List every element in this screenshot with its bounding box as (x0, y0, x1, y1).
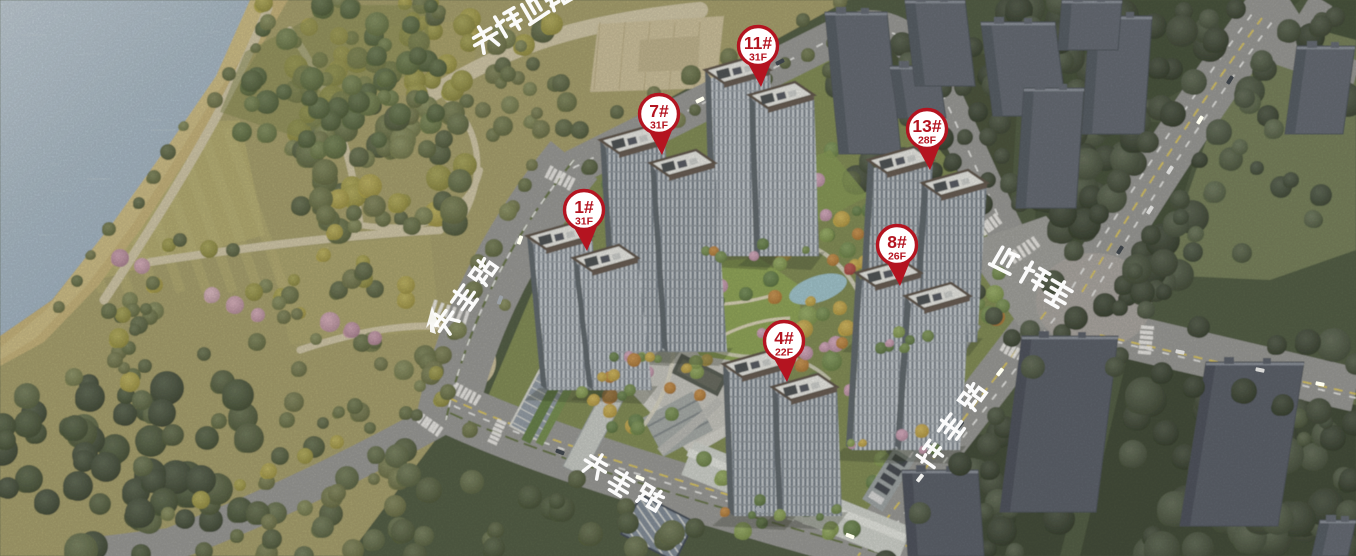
svg-text:31F: 31F (650, 120, 669, 132)
svg-text:31F: 31F (749, 52, 768, 64)
svg-text:26F: 26F (888, 251, 907, 263)
svg-text:11#: 11# (744, 33, 772, 53)
svg-text:1#: 1# (574, 197, 594, 217)
svg-text:31F: 31F (575, 216, 594, 228)
svg-text:22F: 22F (775, 347, 794, 359)
svg-text:7#: 7# (649, 101, 669, 121)
svg-text:28F: 28F (918, 135, 937, 147)
svg-text:8#: 8# (887, 232, 907, 252)
svg-text:13#: 13# (912, 116, 941, 136)
svg-text:4#: 4# (774, 328, 794, 348)
